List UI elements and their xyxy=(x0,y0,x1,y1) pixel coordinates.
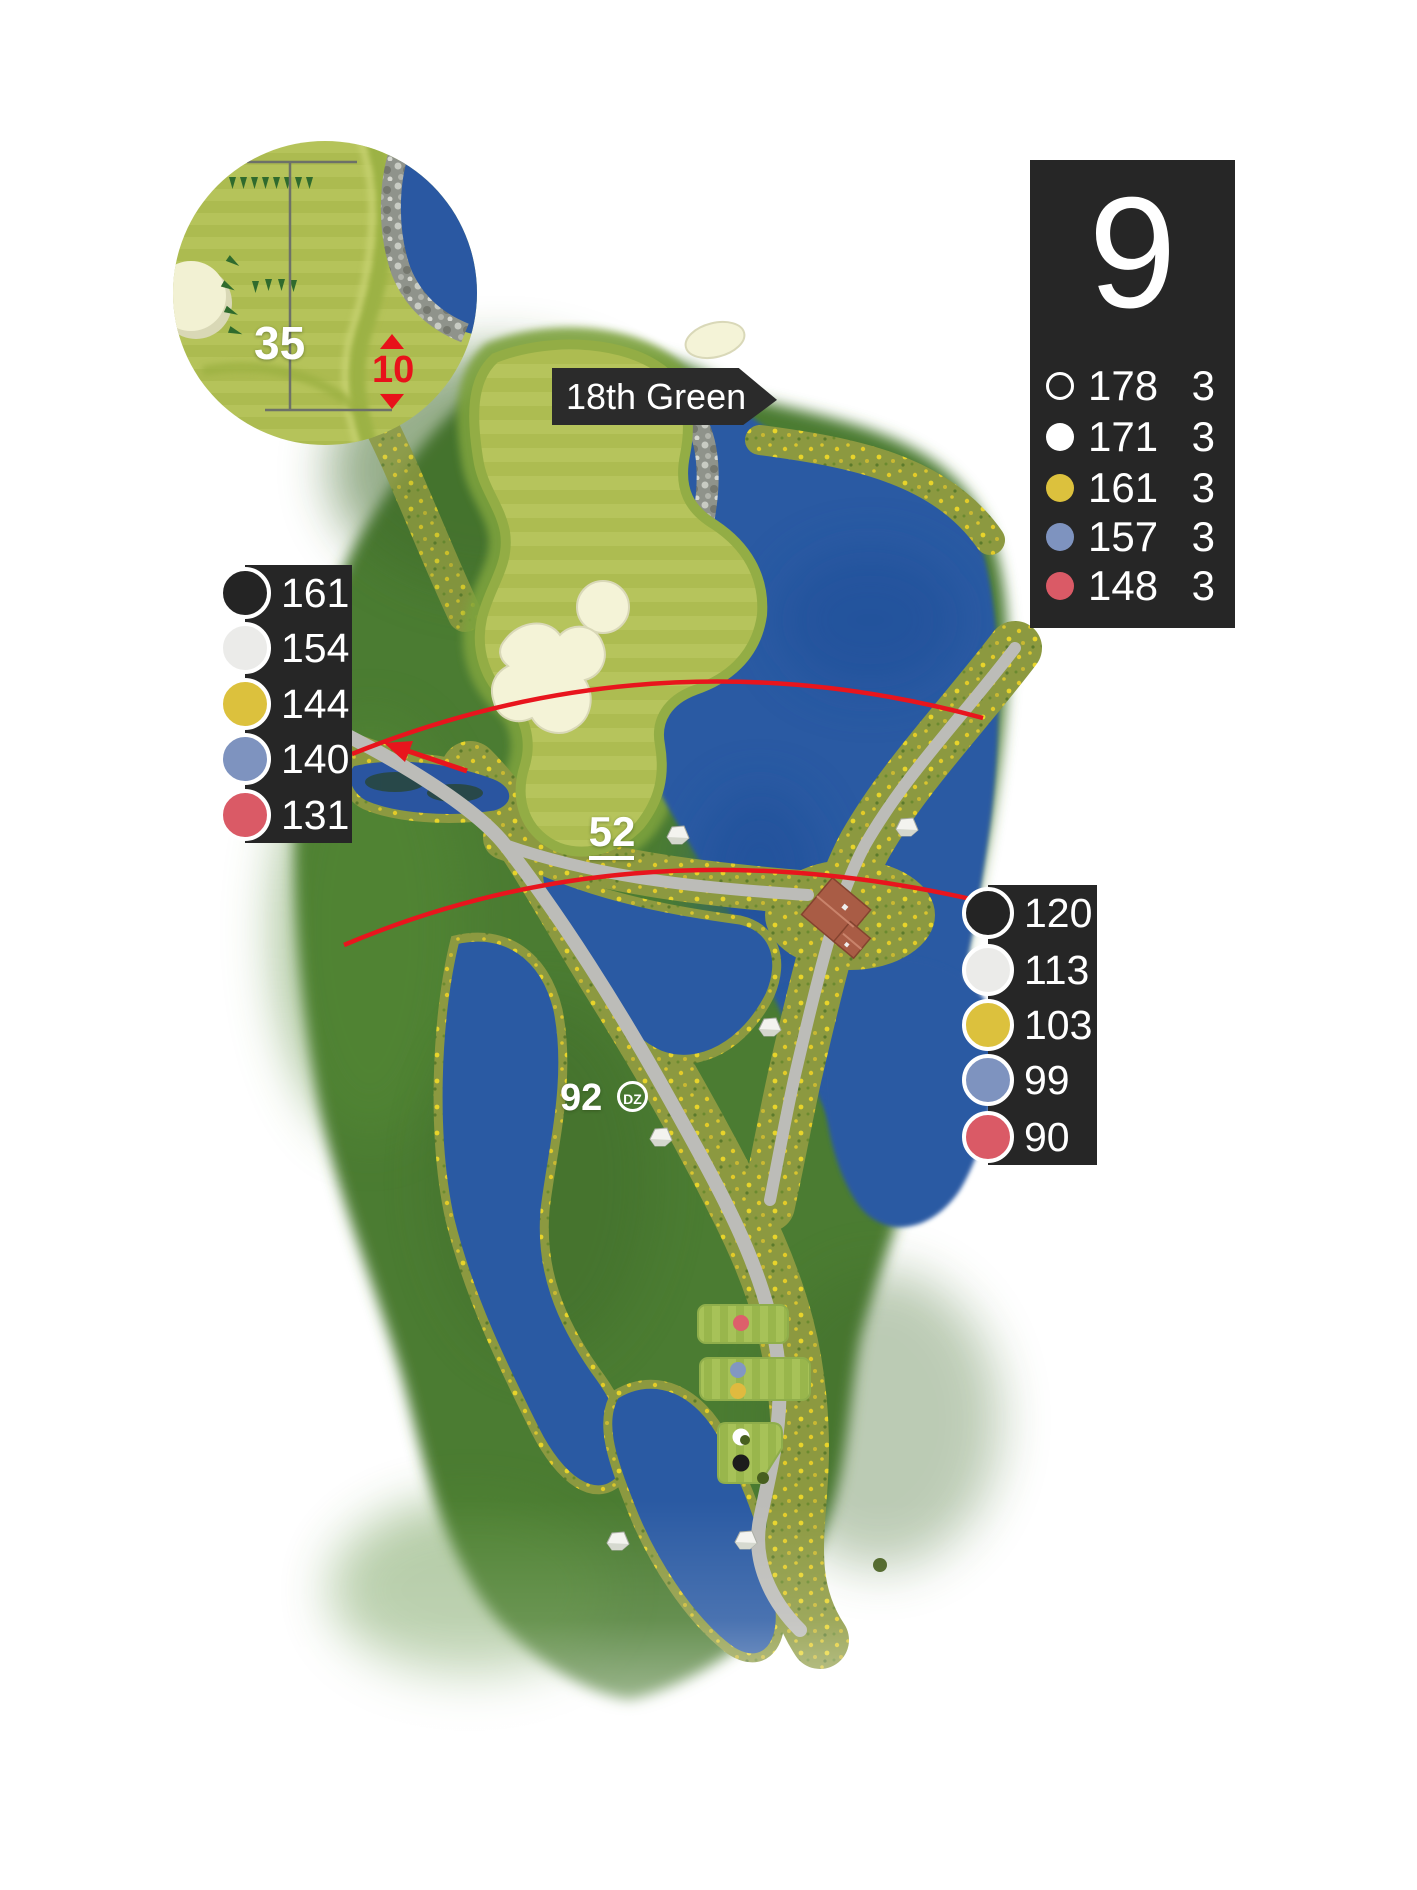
black-marker-icon xyxy=(962,887,1014,939)
blue-tee-dot xyxy=(730,1362,746,1378)
distance-row: 120 xyxy=(988,887,1097,939)
black-tee-dot xyxy=(733,1455,750,1472)
mid-distance-label: 52 xyxy=(586,808,638,856)
yardage: 113 xyxy=(1024,944,1089,996)
yardage: 131 xyxy=(281,789,349,841)
hole-number: 9 xyxy=(1030,174,1235,332)
tee-par: 3 xyxy=(1192,563,1215,609)
tee-par: 3 xyxy=(1192,363,1215,409)
yellow-tee-dot xyxy=(730,1383,746,1399)
golf-hole-guide-page: { "hole": { "number": "9", "tees": [ {"m… xyxy=(0,0,1417,1890)
red-marker-icon xyxy=(219,789,271,841)
tee-row-yellow: 161 3 xyxy=(1030,465,1235,511)
yellow-marker-icon xyxy=(962,999,1014,1051)
yardage: 144 xyxy=(281,678,349,730)
red-tee-icon xyxy=(1046,572,1074,600)
yardage: 120 xyxy=(1024,887,1092,939)
white-marker-icon xyxy=(219,622,271,674)
green-detail-inset xyxy=(173,141,477,445)
yardage: 90 xyxy=(1024,1111,1070,1163)
red-tee-dot xyxy=(733,1315,749,1331)
tee-par: 3 xyxy=(1192,514,1215,560)
yellow-tee-icon xyxy=(1046,474,1074,502)
distance-row: 161 xyxy=(245,567,352,619)
tee-yardage: 148 xyxy=(1088,563,1158,609)
adjacent-green-banner: 18th Green xyxy=(552,368,777,425)
tee-par: 3 xyxy=(1192,414,1215,460)
distance-row: 90 xyxy=(988,1111,1097,1163)
blue-marker-icon xyxy=(962,1054,1014,1106)
blue-marker-icon xyxy=(219,733,271,785)
open-circle-tee-icon xyxy=(1046,372,1074,400)
tee-row-white: 171 3 xyxy=(1030,414,1235,460)
mid-distance-underline xyxy=(589,856,634,860)
right-distance-panel: 120 113 103 99 90 xyxy=(988,885,1097,1165)
distance-row: 131 xyxy=(245,789,352,841)
inset-carry-arrow-down xyxy=(380,394,404,409)
yardage: 99 xyxy=(1024,1054,1070,1106)
distance-row: 154 xyxy=(245,622,352,674)
yardage: 140 xyxy=(281,733,349,785)
white-tee-icon xyxy=(1046,423,1074,451)
tee-row-championship: 178 3 xyxy=(1030,363,1235,409)
yardage: 103 xyxy=(1024,999,1092,1051)
distance-row: 144 xyxy=(245,678,352,730)
tee-par: 3 xyxy=(1192,465,1215,511)
blue-yellow-tee-box xyxy=(700,1358,810,1400)
bottom-fade xyxy=(250,1500,1200,1890)
tee-yardage: 171 xyxy=(1088,414,1158,460)
distance-row: 103 xyxy=(988,999,1097,1051)
blue-tee-icon xyxy=(1046,523,1074,551)
tee-yardage: 157 xyxy=(1088,514,1158,560)
yardage: 154 xyxy=(281,622,349,674)
distance-row: 99 xyxy=(988,1054,1097,1106)
white-marker-icon xyxy=(962,944,1014,996)
yardage: 161 xyxy=(281,567,349,619)
distance-row: 113 xyxy=(988,944,1097,996)
inset-carry-label: 10 xyxy=(372,349,414,392)
adjacent-green-label: 18th Green xyxy=(566,376,746,417)
tee-row-red: 148 3 xyxy=(1030,563,1235,609)
distance-row: 140 xyxy=(245,733,352,785)
black-marker-icon xyxy=(219,567,271,619)
red-marker-icon xyxy=(962,1111,1014,1163)
inset-depth-label: 35 xyxy=(254,316,305,370)
dropzone-badge: DZ xyxy=(617,1081,648,1112)
yellow-marker-icon xyxy=(219,678,271,730)
dropzone-distance-label: 92 xyxy=(560,1077,602,1120)
inset-carry-arrow-up xyxy=(380,334,404,349)
left-distance-panel: 161 154 144 140 131 xyxy=(245,565,352,843)
tee-row-blue: 157 3 xyxy=(1030,514,1235,560)
tee-yardage: 161 xyxy=(1088,465,1158,511)
hole-info-panel: 9 178 3 171 3 161 3 157 3 148 3 xyxy=(1030,160,1235,628)
tee-yardage: 178 xyxy=(1088,363,1158,409)
